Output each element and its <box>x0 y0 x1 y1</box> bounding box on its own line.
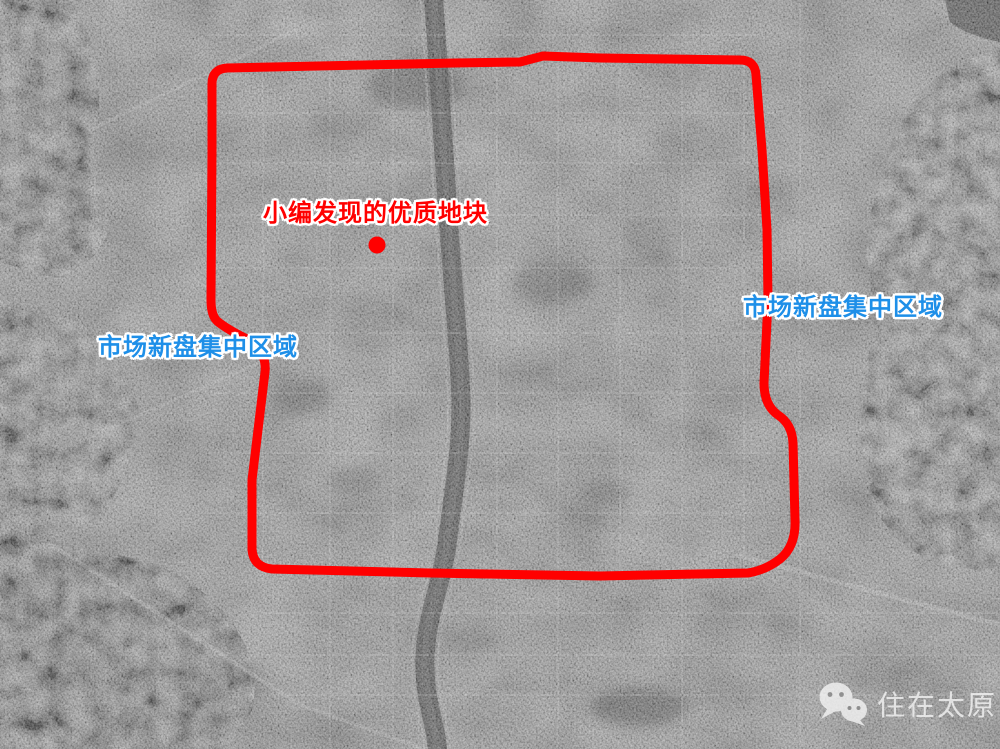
site-label: 小编发现的优质地块 <box>263 201 488 225</box>
satellite-grain <box>0 0 1000 749</box>
right-region-label: 市场新盘集中区域 <box>743 295 943 319</box>
watermark: 住在太原 <box>818 681 997 727</box>
site-marker-dot <box>369 237 386 254</box>
satellite-map: 小编发现的优质地块 市场新盘集中区域 市场新盘集中区域 住在太原 <box>0 0 1000 749</box>
satellite-imagery <box>0 0 1000 749</box>
wechat-icon <box>818 681 868 727</box>
left-region-label: 市场新盘集中区域 <box>98 335 298 359</box>
watermark-text: 住在太原 <box>877 684 997 724</box>
